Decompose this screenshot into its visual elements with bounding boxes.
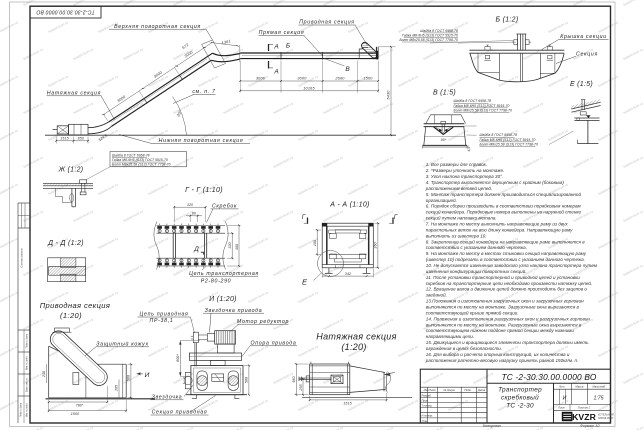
svg-text:Ж (1:2): Ж (1:2) bbox=[58, 167, 84, 174]
svg-text:(швеллер 10) подрезать в соо: (швеллер 10) подрезать в соответствии с … bbox=[426, 257, 585, 262]
svg-text:Нижняя поворотная секция: Нижняя поворотная секция bbox=[159, 138, 244, 144]
svg-text:ТС-2-30.30.00.0000 ВО: ТС-2-30.30.00.0000 ВО bbox=[36, 9, 95, 15]
svg-text:80: 80 bbox=[192, 211, 196, 215]
svg-text:скребков на транспортерные цеп: скребков на транспортерные цепи необходи… bbox=[426, 280, 592, 286]
svg-text:15. Движущиеся и вращающиеся: 15. Движущиеся и вращающиеся элементы тр… bbox=[426, 340, 589, 345]
svg-text:Защитный кожух: Защитный кожух bbox=[96, 340, 149, 347]
svg-text:А: А bbox=[273, 69, 278, 76]
svg-text:В (1:5): В (1:5) bbox=[433, 90, 456, 97]
svg-text:400: 400 bbox=[235, 244, 239, 250]
svg-text:Е (1:5): Е (1:5) bbox=[570, 81, 593, 88]
svg-text:8. Закрепление секций конвейе: 8. Закрепление секций конвейера на напра… bbox=[426, 238, 585, 244]
svg-text:Секция приводная: Секция приводная bbox=[152, 410, 208, 416]
svg-text:Лист: Лист bbox=[428, 388, 437, 392]
svg-text:Б (1:2): Б (1:2) bbox=[496, 17, 519, 24]
svg-text:6. Порядок сборки производить: 6. Порядок сборки производить в соответс… bbox=[426, 204, 582, 209]
svg-text:12. Вращение валов и движение: 12. Вращение валов и движение цепей долж… bbox=[426, 286, 588, 292]
svg-text:Опора привода: Опора привода bbox=[251, 340, 297, 346]
svg-text:Гайка М8-6Н5 (S13) ГОСТ 5915-7: Гайка М8-6Н5 (S13) ГОСТ 5915-70 bbox=[480, 138, 536, 142]
svg-text:скребковый: скребковый bbox=[501, 394, 539, 402]
svg-text:850: 850 bbox=[78, 137, 84, 141]
svg-text:(1:20): (1:20) bbox=[60, 311, 82, 320]
svg-text:Шайба 8 ГОСТ 6958-78: Шайба 8 ГОСТ 6958-78 bbox=[420, 29, 458, 33]
svg-text:Инв. № дубл.: Инв. № дубл. bbox=[26, 356, 29, 370]
svg-text:320: 320 bbox=[187, 203, 193, 207]
svg-text:780*: 780* bbox=[76, 404, 84, 408]
svg-text:Формат А2: Формат А2 bbox=[580, 424, 599, 428]
svg-text:Согласовано: Согласовано bbox=[20, 248, 24, 268]
svg-text:В: В bbox=[345, 66, 350, 73]
svg-text:Секция: Секция bbox=[576, 52, 598, 58]
svg-text:Пров.: Пров. bbox=[422, 398, 429, 402]
svg-text:ТС -2-30: ТС -2-30 bbox=[506, 403, 534, 410]
svg-text:(1:20): (1:20) bbox=[341, 342, 366, 352]
svg-text:255: 255 bbox=[299, 384, 303, 391]
svg-text:Верхняя поворотная секция: Верхняя поворотная секция bbox=[114, 24, 201, 30]
svg-text:секций конвейера. Порядковые: секций конвейера. Порядковые номера выпо… bbox=[426, 209, 582, 215]
svg-text:Транспортер: Транспортер bbox=[498, 387, 542, 394]
svg-text:4,5*: 4,5* bbox=[467, 145, 471, 152]
svg-text:расположением ветвей цепей.: расположением ветвей цепей. bbox=[425, 185, 492, 191]
svg-text:11. После установки транспорт: 11. После установки транспортерной и при… bbox=[426, 274, 581, 280]
svg-text:Утв.: Утв. bbox=[422, 419, 428, 423]
svg-text:И (1:20): И (1:20) bbox=[209, 296, 237, 303]
svg-text:5. Монтаж транспортера должен: 5. Монтаж транспортера должен производит… bbox=[426, 191, 582, 197]
svg-text:Прямая секция: Прямая секция bbox=[259, 30, 305, 36]
svg-text:Подп.: Подп. bbox=[465, 388, 472, 392]
svg-text:Цепь приводная: Цепь приводная bbox=[139, 312, 188, 318]
svg-text:Звездочка привода: Звездочка привода bbox=[205, 308, 263, 314]
svg-text:240: 240 bbox=[42, 371, 46, 378]
svg-text:И: И bbox=[563, 396, 567, 402]
svg-text:3000: 3000 bbox=[297, 77, 307, 81]
svg-text:7. На монтаже по месту выполн: 7. На монтаже по месту выполнить направл… bbox=[426, 222, 569, 227]
svg-text:342: 342 bbox=[345, 272, 351, 276]
svg-text:265: 265 bbox=[115, 385, 119, 392]
svg-text:ЗАВОД КВЗР: ЗАВОД КВЗР bbox=[598, 417, 614, 420]
svg-text:Звездочка: Звездочка bbox=[152, 394, 183, 400]
svg-text:Масса: Масса bbox=[575, 385, 583, 389]
svg-text:направляющими цепи.: направляющими цепи. bbox=[426, 334, 474, 339]
svg-text:10165: 10165 bbox=[303, 86, 315, 90]
svg-text:2660: 2660 bbox=[334, 77, 345, 81]
svg-text:10. Не допускается изменения з: 10. Не допускается изменения заводского … bbox=[426, 263, 598, 268]
svg-text:Гайка М8-6Н5 (S13) ГОСТ 5915-7: Гайка М8-6Н5 (S13) ГОСТ 5915-70 bbox=[112, 158, 168, 162]
svg-text:соответствии с указанием данно: соответствии с указанием данного чертежа… bbox=[426, 245, 527, 250]
svg-text:Приводная секция: Приводная секция bbox=[299, 20, 355, 26]
svg-text:3000: 3000 bbox=[256, 77, 266, 81]
svg-text:9. На монтаже по месту в мест: 9. На монтаже по месту в местах стыковки… bbox=[426, 250, 587, 256]
svg-text:изменения конфигурации поворот: изменения конфигурации поворотных секций… bbox=[426, 268, 527, 274]
svg-text:Д: Д bbox=[193, 246, 199, 253]
svg-text:4. Транспортер выполняется дв: 4. Транспортер выполняется двухцепным с … bbox=[426, 179, 565, 185]
svg-text:Б: Б bbox=[286, 43, 290, 50]
svg-text:Копировал: Копировал bbox=[483, 424, 501, 428]
svg-text:ТС -2-30.30.00.0000 ВО: ТС -2-30.30.00.0000 ВО bbox=[501, 372, 596, 382]
svg-text:560: 560 bbox=[127, 375, 131, 381]
svg-text:ПР-38,1: ПР-38,1 bbox=[150, 318, 174, 324]
svg-text:Шайба 8 ГОСТ 6958-78: Шайба 8 ГОСТ 6958-78 bbox=[454, 99, 492, 103]
svg-text:13.Положения и изготовления за: 13.Положения и изготовления загрузочных … bbox=[426, 299, 584, 304]
svg-text:560: 560 bbox=[292, 376, 296, 382]
svg-text:Взам. инв. №: Взам. инв. № bbox=[26, 377, 29, 392]
svg-text:выполняются по месту на монтаж: выполняются по месту на монтаже. Загрузо… bbox=[426, 305, 580, 310]
svg-text:2. *Размеры уточнить на монта: 2. *Размеры уточнить на монтаже. bbox=[425, 168, 505, 173]
svg-text:Подп. и дата: Подп. и дата bbox=[20, 402, 23, 417]
svg-text:Листов 1: Листов 1 bbox=[577, 406, 591, 410]
svg-text:параллельных веток на всю длин: параллельных веток на всю длину конвейер… bbox=[426, 226, 573, 232]
svg-text:выполняются по месту на монтаж: выполняются по месту на монтаже. Разгруз… bbox=[426, 322, 582, 327]
svg-text:Т.контр.: Т.контр. bbox=[422, 404, 433, 408]
svg-text:расположения расчетно-весовую: расположения расчетно-весовую нагрузку п… bbox=[425, 357, 579, 363]
svg-text:Г - Г (1:10): Г - Г (1:10) bbox=[185, 187, 223, 194]
svg-text:заеданий.: заеданий. bbox=[425, 292, 447, 298]
svg-text:800*: 800* bbox=[176, 354, 180, 362]
svg-text:Лист: Лист bbox=[557, 406, 566, 410]
svg-text:90*: 90* bbox=[441, 138, 447, 142]
svg-text:Гайка М8-6Н5 (S13) ГОСТ 5915-7: Гайка М8-6Н5 (S13) ГОСТ 5915-70 bbox=[402, 33, 458, 37]
svg-text:Г: Г bbox=[302, 214, 306, 221]
svg-text:Н.контр.: Н.контр. bbox=[422, 414, 434, 418]
svg-text:А - А (1:10): А - А (1:10) bbox=[329, 202, 369, 209]
svg-text:560: 560 bbox=[245, 377, 249, 383]
svg-text:Г: Г bbox=[394, 214, 398, 221]
svg-text:1:75: 1:75 bbox=[593, 396, 603, 402]
svg-text:16. Для выбора и расчета опор: 16. Для выбора и расчета опорных констру… bbox=[426, 351, 570, 357]
svg-text:И: И bbox=[145, 372, 150, 379]
svg-text:Лит.: Лит. bbox=[558, 385, 566, 389]
svg-text:1500: 1500 bbox=[363, 77, 373, 81]
svg-text:Болт М8х25.58 (S13) ГОСТ 7798-: Болт М8х25.58 (S13) ГОСТ 7798-70 bbox=[480, 142, 539, 146]
svg-text:А: А bbox=[273, 44, 278, 51]
svg-text:Крышка секции: Крышка секции bbox=[560, 34, 607, 40]
svg-text:организацией.: организацией. bbox=[426, 197, 457, 203]
svg-text:1515: 1515 bbox=[60, 137, 68, 141]
svg-text:Подп. и дата: Подп. и дата bbox=[26, 333, 29, 348]
svg-text:Дата: Дата bbox=[477, 388, 486, 392]
svg-text:Инв. № подл.: Инв. № подл. bbox=[26, 403, 29, 418]
svg-text:Болт М8х25.58 (S13) ГОСТ 7798-: Болт М8х25.58 (S13) ГОСТ 7798-70 bbox=[399, 38, 458, 42]
svg-text:1. Все размеры для справок.: 1. Все размеры для справок. bbox=[426, 162, 487, 167]
svg-text:1500: 1500 bbox=[71, 412, 79, 416]
svg-text:Цепь транспортерная: Цепь транспортерная bbox=[189, 271, 259, 277]
svg-text:ограждения в целях безопасност: ограждения в целях безопасности. bbox=[426, 346, 502, 351]
svg-text:360: 360 bbox=[374, 242, 378, 248]
svg-text:Натяжная секция: Натяжная секция bbox=[316, 332, 396, 342]
svg-text:3. Угол наклона транспортера: 3. Угол наклона транспортера 30°. bbox=[426, 174, 503, 179]
svg-text:Изм: Изм bbox=[424, 388, 429, 392]
svg-text:Мотор редуктор: Мотор редуктор bbox=[237, 319, 289, 325]
svg-text:Болт М8х25.58 (S13) ГОСТ 7798-: Болт М8х25.58 (S13) ГОСТ 7798-70 bbox=[112, 163, 171, 167]
svg-text:Болт М8х25.58 (S13) ГОСТ 7798-: Болт М8х25.58 (S13) ГОСТ 7798-70 bbox=[454, 108, 513, 112]
svg-text:см. п. 7: см. п. 7 bbox=[192, 89, 216, 95]
svg-text:Шайба 8 ГОСТ 6958-78: Шайба 8 ГОСТ 6958-78 bbox=[112, 153, 150, 157]
svg-text:Шайба 8 ГОСТ 6958-78: Шайба 8 ГОСТ 6958-78 bbox=[480, 133, 518, 137]
svg-text:Масштаб: Масштаб bbox=[593, 385, 606, 389]
svg-text:Р2-80-290: Р2-80-290 bbox=[201, 279, 232, 285]
svg-text:Гайка М8-6Н5 (S13) ГОСТ 5915-7: Гайка М8-6Н5 (S13) ГОСТ 5915-70 bbox=[454, 104, 510, 108]
svg-text:100: 100 bbox=[313, 240, 317, 246]
svg-text:Натяжная секция: Натяжная секция bbox=[47, 90, 101, 96]
svg-text:Разраб.: Разраб. bbox=[422, 393, 432, 397]
svg-text:Приводная секция: Приводная секция bbox=[40, 301, 111, 310]
svg-text:выполнить из швеллера 10.: выполнить из швеллера 10. bbox=[426, 233, 487, 238]
svg-text:Скребок: Скребок bbox=[212, 204, 237, 210]
svg-text:320: 320 bbox=[228, 242, 232, 248]
svg-text:14. Положения и изготовления: 14. Положения и изготовления разгрузочны… bbox=[426, 316, 591, 321]
svg-text:1515: 1515 bbox=[343, 401, 351, 405]
svg-text:№ докум.: № докум. bbox=[444, 388, 456, 392]
svg-text:соответствующей крыше прямой с: соответствующей крыше прямой секции. bbox=[426, 309, 519, 315]
svg-text:соответствующем нижнем поддоне: соответствующем нижнем поддоне прямой се… bbox=[426, 327, 575, 333]
svg-text:Д - Д (1:2): Д - Д (1:2) bbox=[47, 240, 84, 247]
svg-text:секций путем наплавки метала.: секций путем наплавки метала. bbox=[426, 215, 497, 221]
svg-text:KVZR: KVZR bbox=[572, 412, 596, 422]
svg-text:5430: 5430 bbox=[387, 90, 391, 100]
